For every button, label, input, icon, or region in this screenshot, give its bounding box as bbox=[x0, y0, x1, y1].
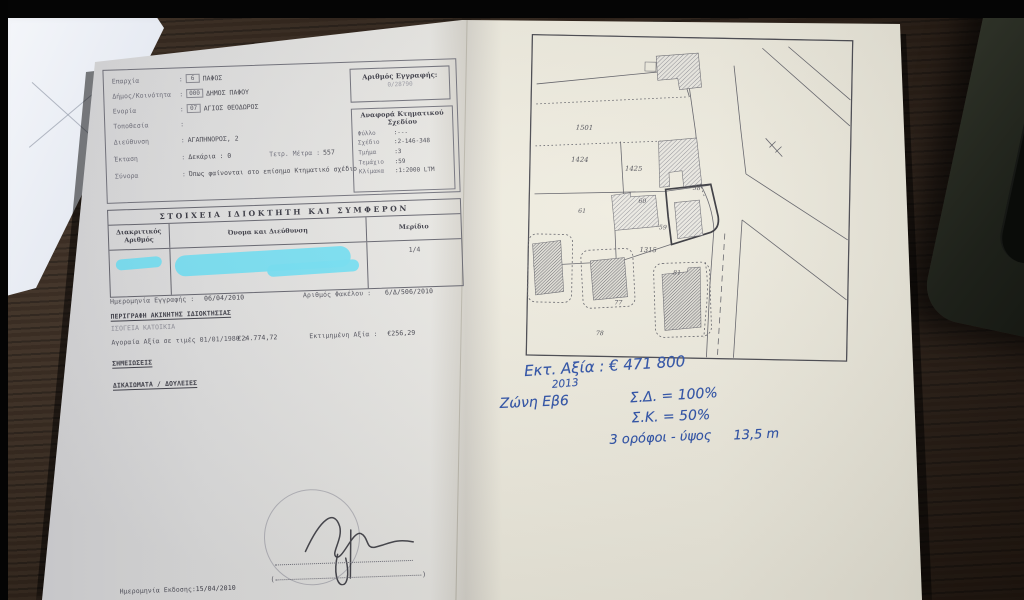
registration-date-value: 06/04/2010 bbox=[204, 294, 244, 302]
photo-of-land-registry-document: Επαρχία : 6 ΠΑΦΟΣ Δήμος/Κοινότητα : 000 … bbox=[0, 0, 1024, 600]
field-label: Επαρχία bbox=[112, 75, 176, 85]
field-district: Επαρχία : 6 ΠΑΦΟΣ bbox=[112, 73, 223, 86]
registration-date-label: Ημερομηνία Εγγραφής : bbox=[110, 296, 194, 306]
column-header: Όνομα και Διεύθυνση bbox=[170, 217, 368, 248]
plot-outlines bbox=[527, 234, 714, 339]
page-fold bbox=[455, 10, 468, 600]
parcel-label: 1424 bbox=[571, 156, 588, 164]
separator: : bbox=[179, 75, 183, 83]
field-parish: Ενορία : 07 ΑΓΙΟΣ ΘΕΟΔΩΡΟΣ bbox=[113, 102, 259, 116]
plan-row: Τμήμα :3 bbox=[353, 146, 453, 156]
separator: : bbox=[179, 90, 183, 98]
handwritten-coverage-factor: Σ.Κ. = 50% bbox=[631, 407, 710, 426]
plan-box-title: Αναφορά Κτηματικού Σχεδίου bbox=[356, 109, 448, 127]
field-value: Όπως φαίνονται στο επίσημο Κτηματικό σχέ… bbox=[189, 165, 357, 179]
parcel-label: 61 bbox=[578, 208, 586, 215]
separator: : bbox=[180, 120, 184, 128]
paren-close: ) bbox=[422, 570, 426, 578]
cadastral-map-svg: 1501 1424 1425 61 60 58 59 1315 81 77 78 bbox=[525, 34, 853, 362]
handwritten-estimated-value: Εκτ. Αξία : € 471 800 bbox=[524, 352, 686, 380]
field-boundaries: Σύνορα : Όπως φαίνονται στο επίσημο Κτημ… bbox=[115, 165, 357, 181]
issue-date-value: 15/04/2010 bbox=[196, 585, 236, 593]
field-address: Διεύθυνση : ΑΓΑΠΗΝΟΡΟΣ, 2 bbox=[114, 134, 239, 146]
open-document-sheets: Επαρχία : 6 ΠΑΦΟΣ Δήμος/Κοινότητα : 000 … bbox=[0, 0, 1024, 600]
column-header: Μερίδιο bbox=[366, 214, 461, 241]
plan-row: Φύλλο :--- bbox=[353, 127, 453, 137]
share-cell: 1/4 bbox=[367, 239, 462, 288]
plan-label: Σχέδιο bbox=[358, 139, 394, 147]
parcel-label: 1315 bbox=[639, 246, 656, 254]
issue-date-label: Ημερομηνία Εκδοσης: bbox=[120, 586, 196, 596]
file-number-value: 6/Δ/506/2010 bbox=[385, 288, 433, 297]
parcel-label: 81 bbox=[673, 270, 681, 277]
name-address-cell bbox=[170, 242, 368, 295]
plan-row: Σχέδιο :2-146-348 bbox=[353, 137, 453, 147]
field-label: Ενορία bbox=[113, 105, 177, 115]
estimated-value-label: Εκτιμημένη Αξία : bbox=[309, 331, 377, 340]
parcel-labels: 1501 1424 1425 61 60 58 59 1315 81 77 78 bbox=[568, 124, 702, 339]
subject-parcel-59-boundary bbox=[665, 183, 720, 245]
registration-number-box: Αριθμός Εγγραφής: 0/28790 bbox=[349, 65, 450, 102]
separator: : bbox=[181, 153, 185, 161]
property-location-form: Επαρχία : 6 ΠΑΦΟΣ Δήμος/Κοινότητα : 000 … bbox=[102, 58, 460, 204]
separator: : bbox=[182, 170, 186, 178]
paren-open: ( bbox=[270, 575, 274, 583]
plan-label: Φύλλο bbox=[358, 129, 394, 137]
table-row: 1/4 bbox=[109, 239, 462, 297]
column-header: Διακριτικός Αριθμός bbox=[109, 223, 171, 249]
device-surface bbox=[995, 1, 1024, 299]
letterbox-top bbox=[0, 0, 1024, 18]
parcel-label: 58 bbox=[693, 185, 701, 192]
field-municipality: Δήμος/Κοινότητα : 000 ΔΗΜΟΣ ΠΑΦΟΥ bbox=[112, 87, 249, 101]
plan-value: :2-146-348 bbox=[394, 137, 430, 145]
plan-row: Τεμάχιο :59 bbox=[353, 156, 453, 166]
parcel-label: 60 bbox=[638, 198, 646, 205]
field-locality: Τοποθεσία : bbox=[113, 120, 184, 130]
market-value-label: Αγοραία Αξία σε τιμές 01/01/1980 : bbox=[111, 335, 248, 347]
handwritten-height: 13,5 m bbox=[733, 426, 779, 443]
market-value: €24.774,72 bbox=[237, 334, 277, 342]
handwritten-floors: 3 ορόφοι - ύψος bbox=[609, 428, 712, 447]
separator: : bbox=[180, 105, 184, 113]
buildings bbox=[531, 50, 706, 331]
estimated-value: €256,29 bbox=[387, 330, 415, 338]
redaction-highlight bbox=[115, 255, 162, 270]
redaction-highlight bbox=[267, 258, 360, 276]
plan-value: :3 bbox=[394, 148, 401, 155]
cadastral-plan-reference-box: Αναφορά Κτηματικού Σχεδίου Φύλλο :--- Σχ… bbox=[351, 105, 456, 192]
left-page: Επαρχία : 6 ΠΑΦΟΣ Δήμος/Κοινότητα : 000 … bbox=[100, 46, 480, 600]
letterbox-left bbox=[0, 0, 8, 600]
signature-line: ( ) bbox=[275, 575, 421, 581]
id-cell bbox=[109, 248, 171, 296]
cadastral-map: 1501 1424 1425 61 60 58 59 1315 81 77 78 bbox=[525, 34, 853, 362]
handwritten-zone: Ζώνη Εβ6 bbox=[499, 393, 569, 412]
notes-heading: ΣΗΜΕΙΩΣΕΙΣ bbox=[112, 359, 152, 367]
description-value: ΙΣΟΓΕΙΑ ΚΑΤΟΙΚΙΑ bbox=[111, 324, 175, 333]
field-value: ΔΗΜΟΣ ΠΑΦΟΥ bbox=[206, 88, 249, 97]
registration-number-title: Αριθμός Εγγραφής: bbox=[351, 70, 449, 81]
parcel-label: 59 bbox=[659, 224, 667, 231]
plan-label: Κλίμακα bbox=[359, 167, 395, 175]
table-title: ΣΤΟΙΧΕΙΑ ΙΔΙΟΚΤΗΤΗ ΚΑΙ ΣΥΜΦΕΡΟΝ bbox=[108, 199, 460, 225]
parcel-label: 1501 bbox=[576, 124, 593, 132]
parcel-label: 77 bbox=[614, 299, 622, 306]
code-box: 000 bbox=[186, 89, 203, 99]
field-value: Δεκάρια : 0 bbox=[188, 151, 266, 162]
plan-value: :--- bbox=[394, 129, 409, 136]
field-label: Σύνορα bbox=[115, 170, 179, 180]
plan-label: Τεμάχιο bbox=[358, 158, 394, 166]
field-value: ΑΓΑΠΗΝΟΡΟΣ, 2 bbox=[188, 134, 239, 144]
table-header-row: Διακριτικός Αριθμός Όνομα και Διεύθυνση … bbox=[109, 214, 462, 251]
signature-line bbox=[275, 560, 413, 566]
field-label: Έκταση bbox=[114, 153, 178, 163]
field-label: Τοποθεσία bbox=[113, 120, 177, 130]
plan-label: Τμήμα bbox=[358, 148, 394, 156]
share-value: 1/4 bbox=[367, 244, 461, 255]
field-value: ΠΑΦΟΣ bbox=[203, 73, 223, 82]
parcel-boundaries bbox=[531, 42, 851, 360]
field-value: 557 bbox=[323, 148, 335, 156]
right-page: 1501 1424 1425 61 60 58 59 1315 81 77 78… bbox=[470, 24, 925, 600]
separator: : bbox=[181, 136, 185, 144]
code-box: 6 bbox=[186, 74, 200, 83]
field-value: ΑΓΙΟΣ ΘΕΟΔΩΡΟΣ bbox=[204, 102, 259, 112]
owner-interest-table: ΣΤΟΙΧΕΙΑ ΙΔΙΟΚΤΗΤΗ ΚΑΙ ΣΥΜΦΕΡΟΝ Διακριτι… bbox=[107, 198, 464, 297]
handwritten-density-factor: Σ.Δ. = 100% bbox=[629, 385, 718, 406]
registration-number-value: 0/28790 bbox=[351, 79, 449, 89]
code-box: 07 bbox=[186, 104, 200, 113]
signature bbox=[290, 498, 423, 587]
plan-row: Κλίμακα :1:2000 LTM bbox=[354, 165, 454, 175]
stamp-circle bbox=[262, 488, 361, 587]
field-label: Διεύθυνση bbox=[114, 136, 178, 146]
rights-heading: ΔΙΚΑΙΩΜΑΤΑ / ΔΟΥΛΕΙΕΣ bbox=[113, 380, 197, 390]
redaction-highlight bbox=[174, 245, 351, 276]
field-extent: Έκταση : Δεκάρια : 0 Τετρ. Μέτρα : 557 bbox=[114, 148, 335, 163]
plan-value: :59 bbox=[394, 157, 405, 164]
parcel-label: 78 bbox=[596, 330, 604, 337]
description-heading: ΠΕΡΙΓΡΑΦΗ ΑΚΙΝΗΤΗΣ ΙΔΙΟΚΤΗΣΙΑΣ bbox=[110, 310, 231, 321]
field-label: Τετρ. Μέτρα : bbox=[269, 149, 320, 159]
handwritten-year: 2013 bbox=[551, 377, 579, 391]
field-label: Δήμος/Κοινότητα bbox=[112, 90, 176, 100]
parcel-label: 1425 bbox=[625, 165, 642, 173]
file-number-label: Αριθμός Φακέλου : bbox=[303, 290, 371, 299]
plan-value: :1:2000 LTM bbox=[395, 166, 435, 174]
map-border bbox=[526, 35, 852, 361]
